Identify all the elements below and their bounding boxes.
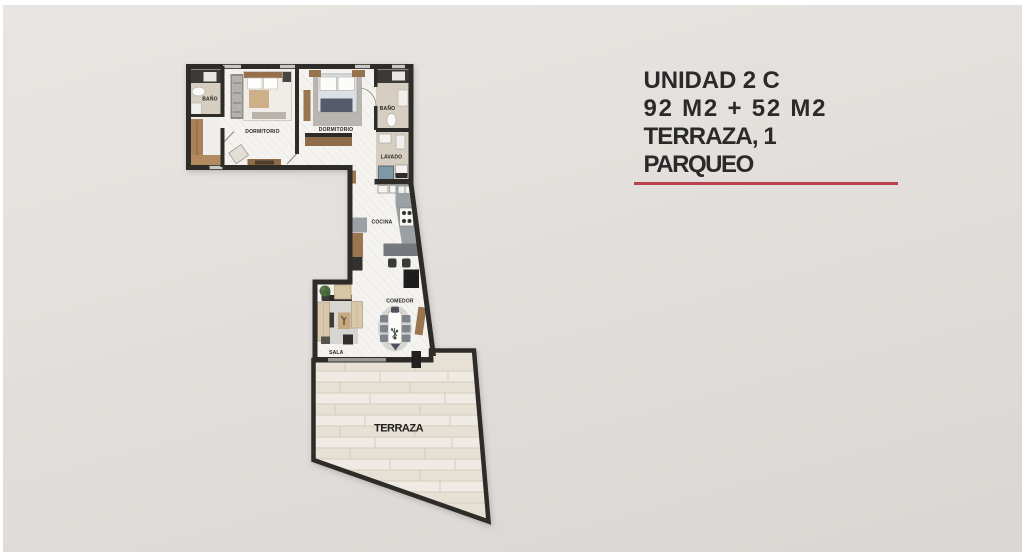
svg-text:COMEDOR: COMEDOR <box>386 299 414 305</box>
svg-text:LAVADO: LAVADO <box>381 154 403 160</box>
svg-text:BAÑO: BAÑO <box>380 105 396 112</box>
svg-text:COCINA: COCINA <box>372 220 393 226</box>
svg-text:BAÑO: BAÑO <box>202 95 218 102</box>
svg-text:DORMITORIO: DORMITORIO <box>245 129 279 135</box>
svg-text:DORMITORIO: DORMITORIO <box>319 127 353 133</box>
svg-text:SALA: SALA <box>329 350 344 356</box>
svg-text:TERRAZA: TERRAZA <box>374 422 424 434</box>
